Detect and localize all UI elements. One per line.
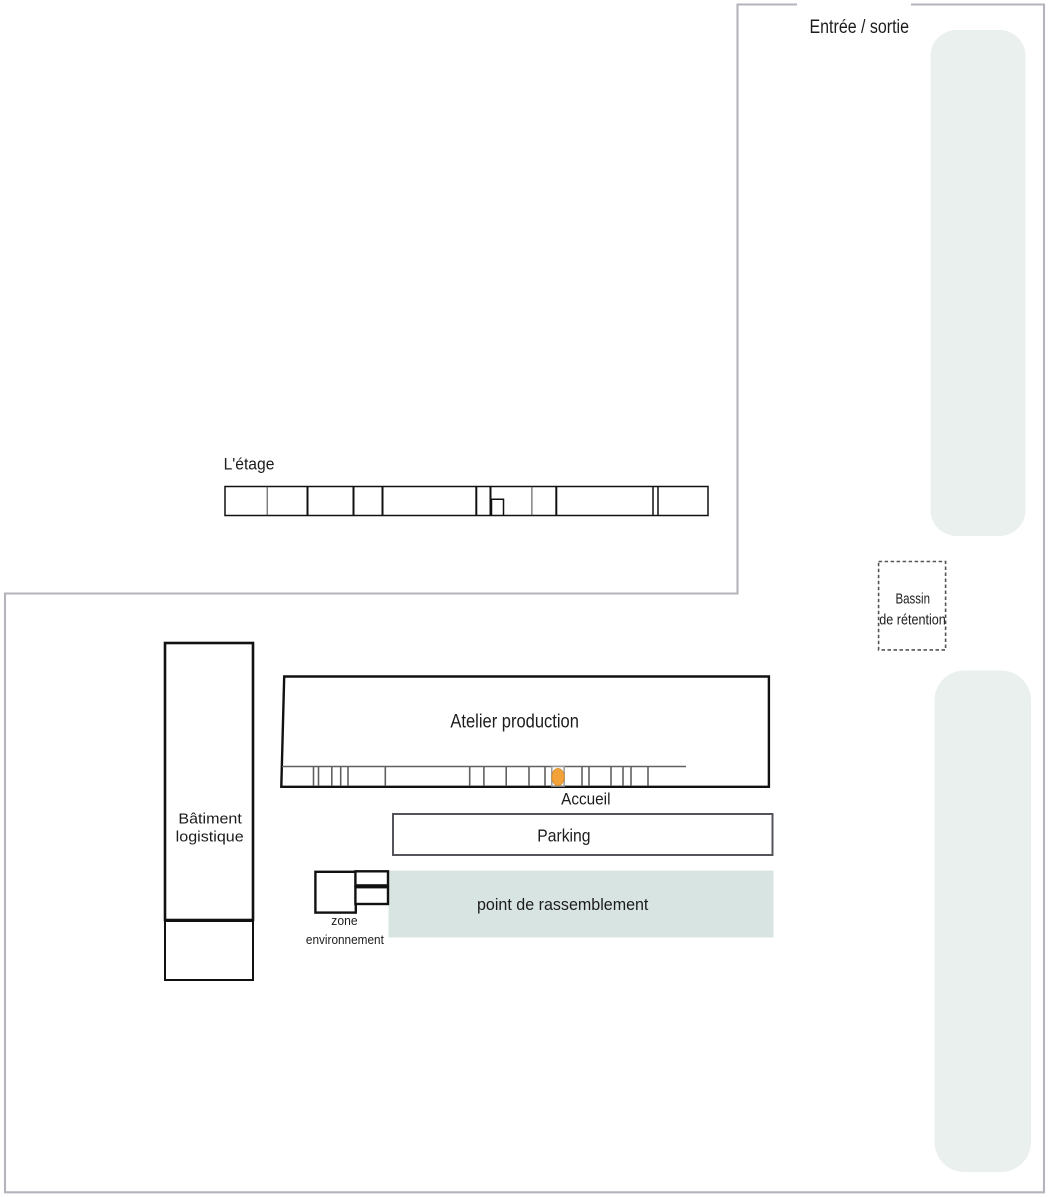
svg-text:point de rassemblement: point de rassemblement: [477, 895, 649, 914]
svg-text:logistique: logistique: [176, 829, 244, 846]
svg-text:Atelier production: Atelier production: [450, 711, 579, 733]
svg-text:L'étage: L'étage: [224, 455, 275, 474]
svg-text:environnement: environnement: [306, 932, 384, 947]
svg-text:de rétention: de rétention: [879, 611, 946, 628]
svg-text:Bâtiment: Bâtiment: [178, 811, 242, 828]
svg-text:Parking: Parking: [537, 826, 590, 846]
svg-text:Accueil: Accueil: [561, 789, 610, 808]
svg-text:zone: zone: [331, 913, 357, 928]
svg-text:Bassin: Bassin: [896, 592, 931, 608]
svg-text:Entrée / sortie: Entrée / sortie: [810, 17, 910, 38]
